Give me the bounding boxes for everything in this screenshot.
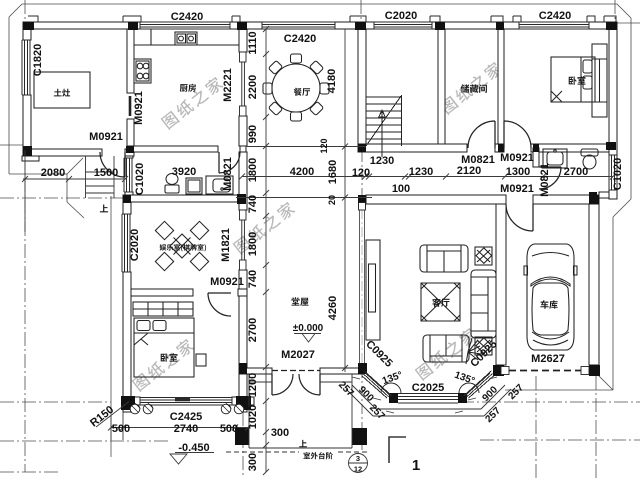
svg-text:-0.450: -0.450 xyxy=(178,442,209,454)
svg-text:120: 120 xyxy=(352,167,370,179)
svg-text:C1020: C1020 xyxy=(134,163,146,195)
svg-text:±0.000: ±0.000 xyxy=(293,323,324,334)
svg-text:1: 1 xyxy=(412,457,420,474)
svg-text:2200: 2200 xyxy=(247,75,259,99)
svg-text:1800: 1800 xyxy=(247,158,259,182)
svg-text:C2425: C2425 xyxy=(170,411,202,423)
svg-text:M0921: M0921 xyxy=(89,131,123,143)
svg-text:C2020: C2020 xyxy=(385,10,417,22)
svg-text:M0821: M0821 xyxy=(461,154,495,166)
svg-text:740: 740 xyxy=(247,195,259,213)
svg-text:990: 990 xyxy=(247,125,259,143)
svg-text:M0821: M0821 xyxy=(539,163,551,197)
svg-text:M2027: M2027 xyxy=(281,349,315,361)
svg-text:M0921: M0921 xyxy=(210,276,244,288)
svg-text:1020: 1020 xyxy=(247,405,259,429)
svg-text:2700: 2700 xyxy=(564,166,588,178)
svg-text:500: 500 xyxy=(220,423,238,435)
svg-text:1800: 1800 xyxy=(247,232,259,256)
svg-text:2080: 2080 xyxy=(41,167,65,179)
svg-text:3920: 3920 xyxy=(172,166,196,178)
svg-text:M0921: M0921 xyxy=(500,183,534,195)
svg-text:C2420: C2420 xyxy=(171,11,203,23)
svg-text:M1821: M1821 xyxy=(220,228,232,262)
svg-text:740: 740 xyxy=(247,270,259,288)
svg-text:100: 100 xyxy=(392,183,410,195)
svg-text:300: 300 xyxy=(247,453,259,471)
svg-text:4200: 4200 xyxy=(290,166,314,178)
svg-text:C1020: C1020 xyxy=(612,158,624,190)
svg-text:1300: 1300 xyxy=(506,166,530,178)
svg-text:3: 3 xyxy=(356,454,360,463)
svg-text:C2020: C2020 xyxy=(129,229,141,261)
svg-text:2740: 2740 xyxy=(174,423,198,435)
svg-text:4180: 4180 xyxy=(326,69,338,93)
svg-text:M2627: M2627 xyxy=(531,353,565,365)
svg-text:M0821: M0821 xyxy=(222,157,234,191)
svg-text:500: 500 xyxy=(112,423,130,435)
svg-text:C2420: C2420 xyxy=(539,10,571,22)
svg-text:M0921: M0921 xyxy=(500,152,534,164)
svg-text:2120: 2120 xyxy=(457,165,481,177)
svg-text:1230: 1230 xyxy=(409,166,433,178)
svg-text:C1820: C1820 xyxy=(32,44,44,76)
svg-text:1110: 1110 xyxy=(247,31,259,54)
svg-text:C2025: C2025 xyxy=(412,382,444,394)
svg-text:M0921: M0921 xyxy=(133,91,145,125)
svg-text:2700: 2700 xyxy=(247,318,259,342)
svg-text:1500: 1500 xyxy=(94,167,118,179)
svg-text:1680: 1680 xyxy=(327,160,339,184)
svg-text:4260: 4260 xyxy=(327,296,339,320)
svg-text:C2420: C2420 xyxy=(284,33,316,45)
svg-text:1200: 1200 xyxy=(247,373,259,397)
svg-text:20: 20 xyxy=(327,195,337,205)
svg-text:120: 120 xyxy=(319,138,329,153)
svg-text:12: 12 xyxy=(354,465,362,474)
svg-text:M2221: M2221 xyxy=(222,68,234,102)
svg-text:300: 300 xyxy=(271,427,289,439)
svg-text:1230: 1230 xyxy=(370,155,394,167)
